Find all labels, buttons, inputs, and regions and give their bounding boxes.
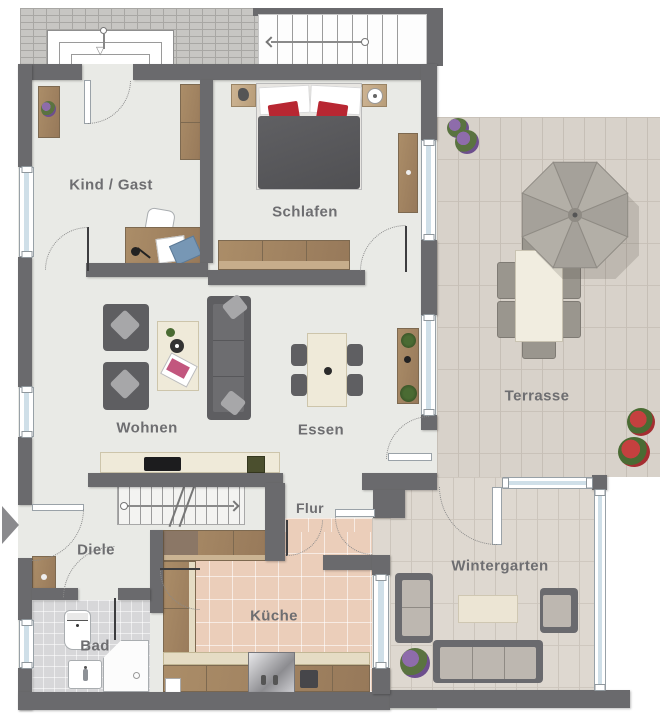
drain-triangle-icon: ▽ xyxy=(96,44,104,57)
armchair xyxy=(103,304,149,351)
door-leaf xyxy=(160,568,200,570)
sofa xyxy=(433,640,543,683)
dining-table xyxy=(307,333,347,407)
patio-chair xyxy=(561,301,581,338)
stair-walkline xyxy=(124,505,234,507)
window xyxy=(421,140,436,240)
dresser xyxy=(398,133,418,213)
room-label-terrasse: Terrasse xyxy=(505,388,570,405)
room-label-essen: Essen xyxy=(298,422,344,439)
armchair xyxy=(103,362,149,410)
wintergarten-door-threshold xyxy=(372,518,390,557)
nightstand xyxy=(362,84,387,107)
wall xyxy=(372,668,390,694)
wall xyxy=(200,80,213,263)
dining-chair xyxy=(347,374,363,396)
wall xyxy=(118,588,150,600)
door-leaf xyxy=(114,598,116,640)
exterior-staircase xyxy=(258,14,427,66)
wall xyxy=(390,690,630,708)
wall xyxy=(18,692,390,710)
armchair xyxy=(540,588,578,633)
flower-bush xyxy=(618,437,650,467)
plant xyxy=(401,333,416,348)
flower-bush xyxy=(627,408,655,436)
wall xyxy=(88,473,283,487)
wall xyxy=(18,437,32,505)
sideboard xyxy=(397,328,419,404)
plant xyxy=(400,648,430,678)
patio-chair xyxy=(522,340,556,359)
stair-start-circle-icon xyxy=(361,38,369,46)
stair-steps xyxy=(277,15,399,65)
stove xyxy=(248,652,295,694)
room-label-diele: Diele xyxy=(77,542,115,559)
entrance-arrow-icon xyxy=(2,506,19,544)
window xyxy=(19,167,34,257)
window xyxy=(19,620,34,668)
stair-start-circle-icon xyxy=(120,502,128,510)
tv xyxy=(144,457,181,471)
stair-walkline xyxy=(271,41,365,43)
room-label-kueche: Küche xyxy=(250,608,298,625)
wardrobe xyxy=(180,84,202,160)
plant xyxy=(400,385,417,402)
door-leaf xyxy=(335,509,375,517)
sink xyxy=(68,660,102,689)
wall xyxy=(18,64,32,167)
parasol-icon xyxy=(515,153,639,279)
wardrobe xyxy=(218,240,350,270)
sofa xyxy=(395,573,433,643)
room-label-wohnen: Wohnen xyxy=(116,420,177,437)
plant xyxy=(41,101,56,117)
duvet xyxy=(258,116,360,189)
wall xyxy=(372,555,390,575)
wall xyxy=(421,64,437,140)
kitchen-sink xyxy=(300,670,318,688)
wall xyxy=(18,257,32,387)
downpipe-icon xyxy=(100,27,107,34)
stair-outer-wall-right xyxy=(427,8,443,66)
wall xyxy=(86,263,208,277)
dining-chair xyxy=(347,344,363,366)
wall xyxy=(18,558,32,620)
coffee-table xyxy=(458,595,518,623)
wall xyxy=(592,475,607,490)
interior-staircase xyxy=(117,486,245,525)
decor-box xyxy=(247,456,265,473)
wall xyxy=(421,240,437,315)
floor-plan: ▽ xyxy=(0,0,665,720)
tv-lowboard xyxy=(100,452,280,473)
wall xyxy=(208,270,365,285)
room-label-schlafen: Schlafen xyxy=(272,204,338,221)
patio-chair xyxy=(497,301,517,338)
stair-direction-arrow-icon xyxy=(265,36,276,47)
room-label-bad: Bad xyxy=(80,638,110,655)
dining-chair xyxy=(291,374,307,396)
patio-chair xyxy=(497,262,517,299)
flower-bush xyxy=(455,130,479,154)
glass-wall xyxy=(503,477,592,489)
nightstand xyxy=(231,84,256,107)
sofa xyxy=(207,296,251,420)
wall xyxy=(362,473,437,490)
room-label-flur: Flur xyxy=(296,500,324,516)
wall xyxy=(373,490,405,518)
room-label-kind-gast: Kind / Gast xyxy=(69,177,153,194)
wall xyxy=(323,555,373,570)
window xyxy=(373,575,389,668)
coffee-table xyxy=(157,321,199,391)
kitchen-appliance xyxy=(165,678,181,693)
double-bed xyxy=(256,83,362,190)
window xyxy=(421,315,436,415)
glass-wall xyxy=(594,490,606,690)
kitchen-upper-cabinets xyxy=(163,530,268,561)
wall xyxy=(133,64,435,80)
room-label-wintergarten: Wintergarten xyxy=(451,558,548,575)
window xyxy=(19,387,34,437)
wall xyxy=(265,483,285,561)
dining-chair xyxy=(291,344,307,366)
